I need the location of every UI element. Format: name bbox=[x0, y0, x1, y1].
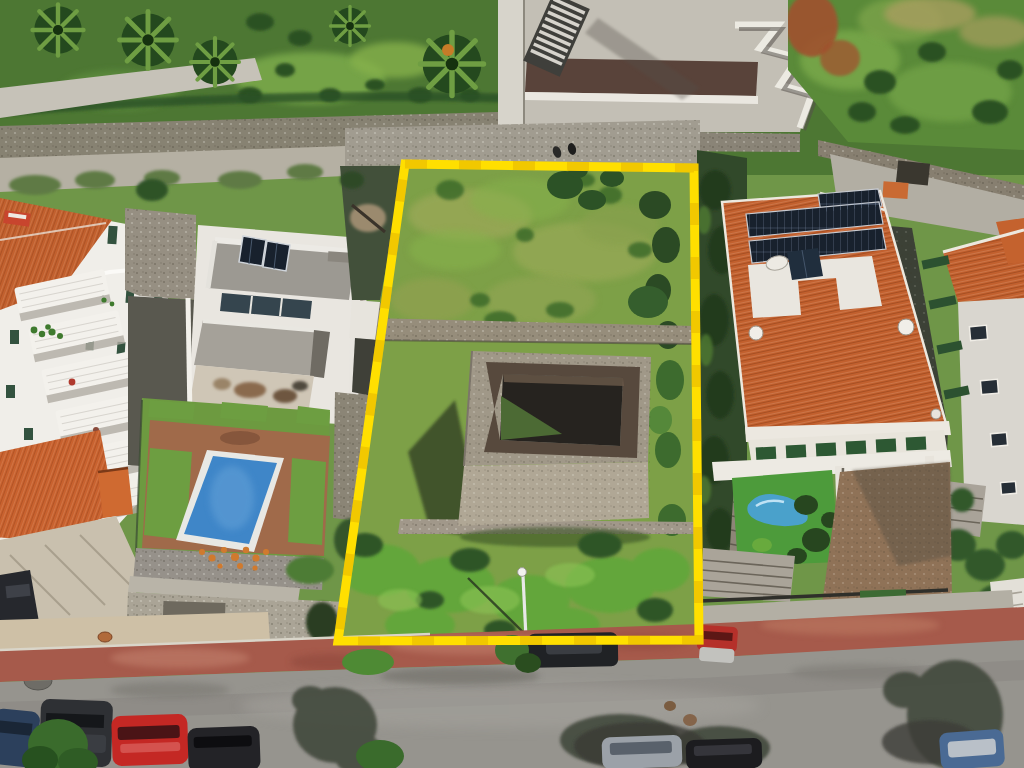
chimney bbox=[749, 326, 763, 340]
aerial-photo bbox=[0, 0, 1024, 768]
black-car-2 bbox=[685, 738, 762, 768]
silver-car bbox=[601, 735, 682, 768]
street bbox=[0, 607, 1024, 768]
aerial-photo-canvas bbox=[0, 0, 1024, 768]
small-shed-roof bbox=[882, 181, 908, 199]
manhole-sidewalk bbox=[98, 632, 112, 642]
stone-water-tank bbox=[458, 351, 651, 526]
chimney bbox=[898, 319, 914, 335]
orange-shed bbox=[98, 468, 133, 518]
pool-garden bbox=[136, 398, 330, 558]
black-car bbox=[187, 726, 260, 768]
palm-fruit bbox=[442, 44, 454, 56]
blue-car-right bbox=[939, 729, 1005, 768]
sidewalk-tree bbox=[342, 649, 394, 675]
red-car bbox=[111, 714, 189, 767]
